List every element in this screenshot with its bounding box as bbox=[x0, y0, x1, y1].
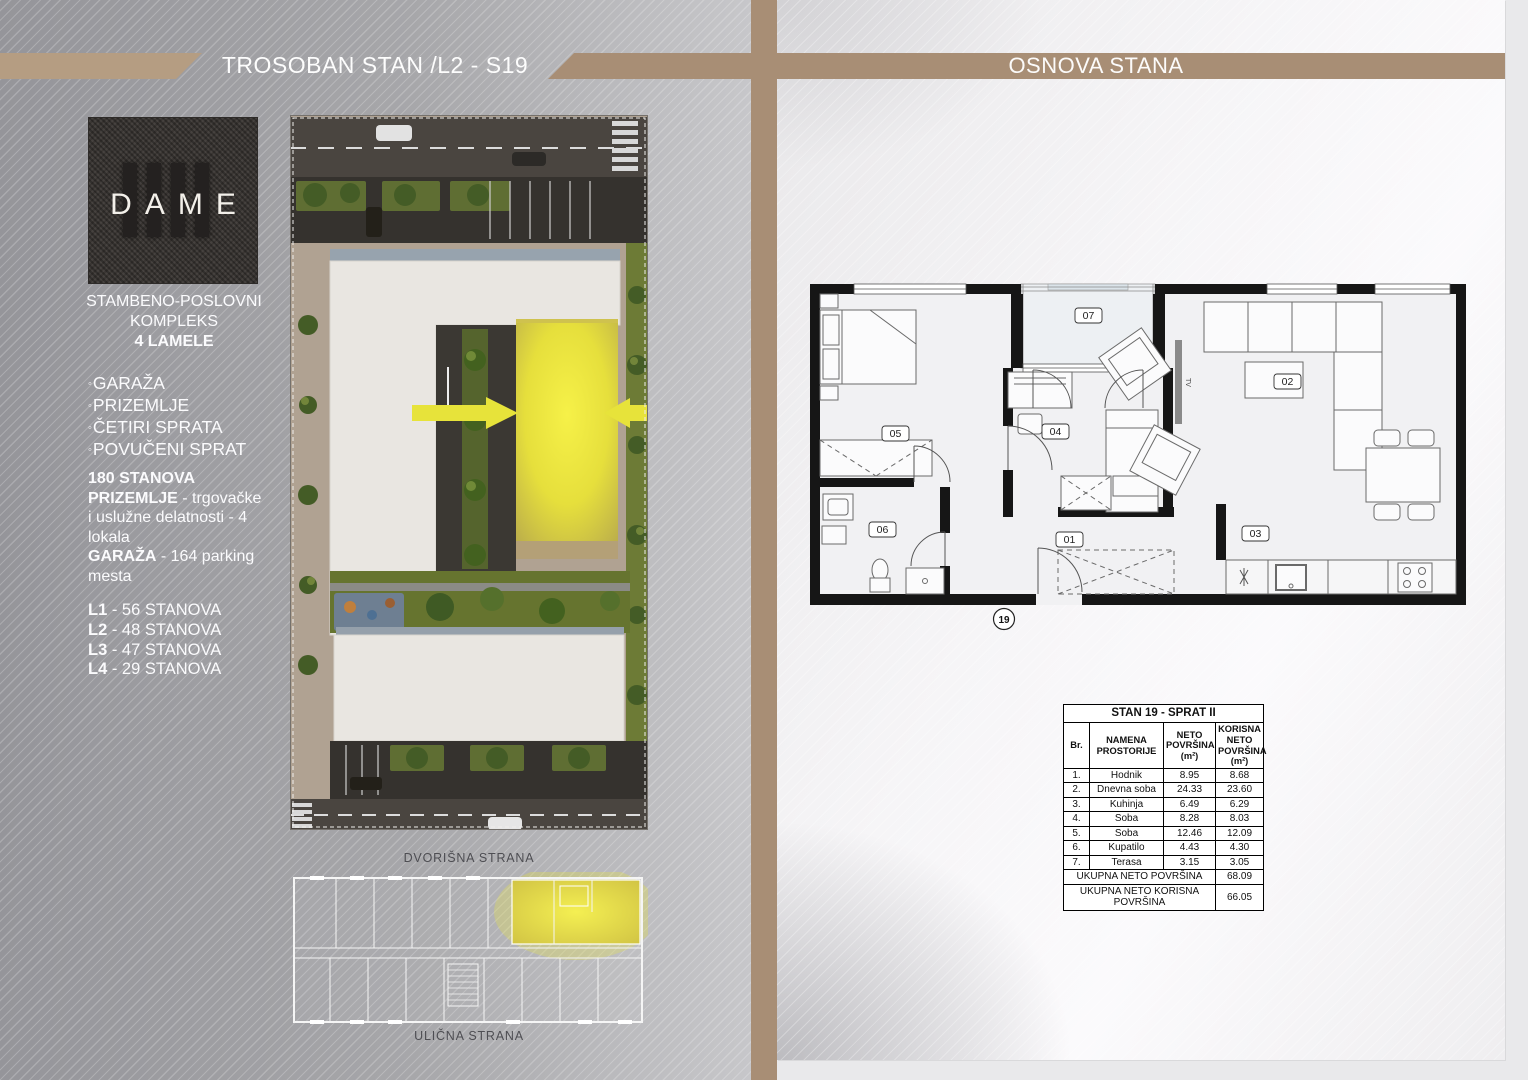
lamela-code: L4 bbox=[88, 660, 107, 678]
room-label: 06 bbox=[877, 524, 889, 536]
total-neto-value: 68.09 bbox=[1216, 870, 1264, 885]
page-title-right: OSNOVA STANA bbox=[777, 53, 1505, 79]
feature-item: ◦PRIZEMLJE bbox=[88, 394, 246, 416]
table-header-row: Br. NAMENA PROSTORIJE NETO POVRŠINA (m²)… bbox=[1064, 723, 1264, 769]
feature-item: ◦POVUČENI SPRAT bbox=[88, 438, 246, 460]
table-title: STAN 19 - SPRAT II bbox=[1064, 705, 1264, 723]
table-total-korisna-row: UKUPNA NETO KORISNA POVRŠINA 66.05 bbox=[1064, 884, 1264, 910]
lamela-item: L1 - 56 STANOVA bbox=[88, 601, 221, 621]
info-bold: 180 STANOVA bbox=[88, 470, 195, 487]
building-info: 180 STANOVA PRIZEMLJE - trgovačke i uslu… bbox=[88, 469, 262, 586]
room-label: 02 bbox=[1282, 376, 1294, 388]
site-aerial-svg bbox=[290, 115, 648, 830]
about-line: KOMPLEKS bbox=[78, 312, 270, 332]
table-row: 5.Soba12.4612.09 bbox=[1064, 826, 1264, 841]
caption-dvorisna-strana: DVORIŠNA STRANA bbox=[290, 851, 648, 865]
table-row: 1.Hodnik8.958.68 bbox=[1064, 768, 1264, 783]
floor-strip-svg bbox=[288, 872, 648, 1028]
area-table: STAN 19 - SPRAT II Br. NAMENA PROSTORIJE… bbox=[1063, 704, 1263, 911]
tv-label: TV bbox=[1184, 378, 1191, 387]
total-korisna-value: 66.05 bbox=[1216, 884, 1264, 910]
feature-label: PRIZEMLJE bbox=[93, 395, 189, 415]
col-header-neto: NETO POVRŠINA (m²) bbox=[1164, 723, 1216, 769]
apartment-floor-plan-svg: TV 07 bbox=[808, 282, 1468, 632]
col-header-namena: NAMENA PROSTORIJE bbox=[1090, 723, 1164, 769]
tv-icon bbox=[1175, 340, 1182, 424]
table-row: 2.Dnevna soba24.3323.60 bbox=[1064, 783, 1264, 798]
apartment-floor-plan: TV 07 bbox=[808, 282, 1468, 632]
lamela-item: L3 - 47 STANOVA bbox=[88, 641, 221, 661]
room-label: 03 bbox=[1250, 528, 1262, 540]
site-aerial-render bbox=[290, 115, 648, 830]
col-header-korisna: KORISNA NETO POVRŠINA (m²) bbox=[1216, 723, 1264, 769]
table-row: 4.Soba8.288.03 bbox=[1064, 812, 1264, 827]
room-label: 01 bbox=[1064, 534, 1076, 546]
room-label: 04 bbox=[1050, 426, 1062, 438]
caption-ulicna-strana: ULIČNA STRANA bbox=[290, 1029, 648, 1043]
dame-logo: DAME bbox=[89, 118, 257, 283]
complex-description: STAMBENO-POSLOVNI KOMPLEKS 4 LAMELE bbox=[78, 292, 270, 351]
total-neto-label: UKUPNA NETO POVRŠINA bbox=[1064, 870, 1216, 885]
features-list: ◦GARAŽA ◦PRIZEMLJE ◦ČETIRI SPRATA ◦POVUČ… bbox=[88, 372, 246, 460]
table-row: 6.Kupatilo4.434.30 bbox=[1064, 841, 1264, 856]
table-row: 3.Kuhinja6.496.29 bbox=[1064, 797, 1264, 812]
logo-text: DAME bbox=[89, 188, 257, 222]
unit-number: 19 bbox=[998, 615, 1010, 626]
feature-item: ◦ČETIRI SPRATA bbox=[88, 416, 246, 438]
about-line: 4 LAMELE bbox=[78, 332, 270, 352]
brochure-page: TROSOBAN STAN /L2 - S19 OSNOVA STANA DAM… bbox=[0, 0, 1528, 1080]
lamele-list: L1 - 56 STANOVA L2 - 48 STANOVA L3 - 47 … bbox=[88, 601, 221, 680]
lamela-count: - 48 STANOVA bbox=[107, 621, 221, 639]
page-title-left: TROSOBAN STAN /L2 - S19 bbox=[180, 51, 570, 79]
bullet-icon: ◦ bbox=[88, 422, 92, 434]
lamela-count: - 47 STANOVA bbox=[107, 641, 221, 659]
feature-item: ◦GARAŽA bbox=[88, 372, 246, 394]
bullet-icon: ◦ bbox=[88, 378, 92, 390]
total-korisna-label: UKUPNA NETO KORISNA POVRŠINA bbox=[1064, 884, 1216, 910]
info-bold: GARAŽA bbox=[88, 548, 156, 565]
info-bold: PRIZEMLJE bbox=[88, 490, 178, 507]
col-header-br: Br. bbox=[1064, 723, 1090, 769]
feature-label: GARAŽA bbox=[93, 373, 165, 393]
table-total-neto-row: UKUPNA NETO POVRŠINA 68.09 bbox=[1064, 870, 1264, 885]
feature-label: POVUČENI SPRAT bbox=[93, 439, 246, 459]
about-line: STAMBENO-POSLOVNI bbox=[78, 292, 270, 312]
room-label: 07 bbox=[1083, 310, 1095, 322]
lamela-count: - 29 STANOVA bbox=[107, 660, 221, 678]
room-label: 05 bbox=[890, 428, 902, 440]
lamela-item: L2 - 48 STANOVA bbox=[88, 621, 221, 641]
lamela-count: - 56 STANOVA bbox=[107, 601, 221, 619]
vertical-tan-band bbox=[751, 0, 777, 1080]
feature-label: ČETIRI SPRATA bbox=[93, 417, 223, 437]
lamela-item: L4 - 29 STANOVA bbox=[88, 660, 221, 680]
table-row: 7.Terasa3.153.05 bbox=[1064, 855, 1264, 870]
bullet-icon: ◦ bbox=[88, 444, 92, 456]
lamela-code: L3 bbox=[88, 641, 107, 659]
lamela-code: L2 bbox=[88, 621, 107, 639]
horizontal-tan-band-left bbox=[0, 53, 202, 79]
lamela-code: L1 bbox=[88, 601, 107, 619]
floor-strip-plan bbox=[288, 872, 648, 1028]
bullet-icon: ◦ bbox=[88, 400, 92, 412]
